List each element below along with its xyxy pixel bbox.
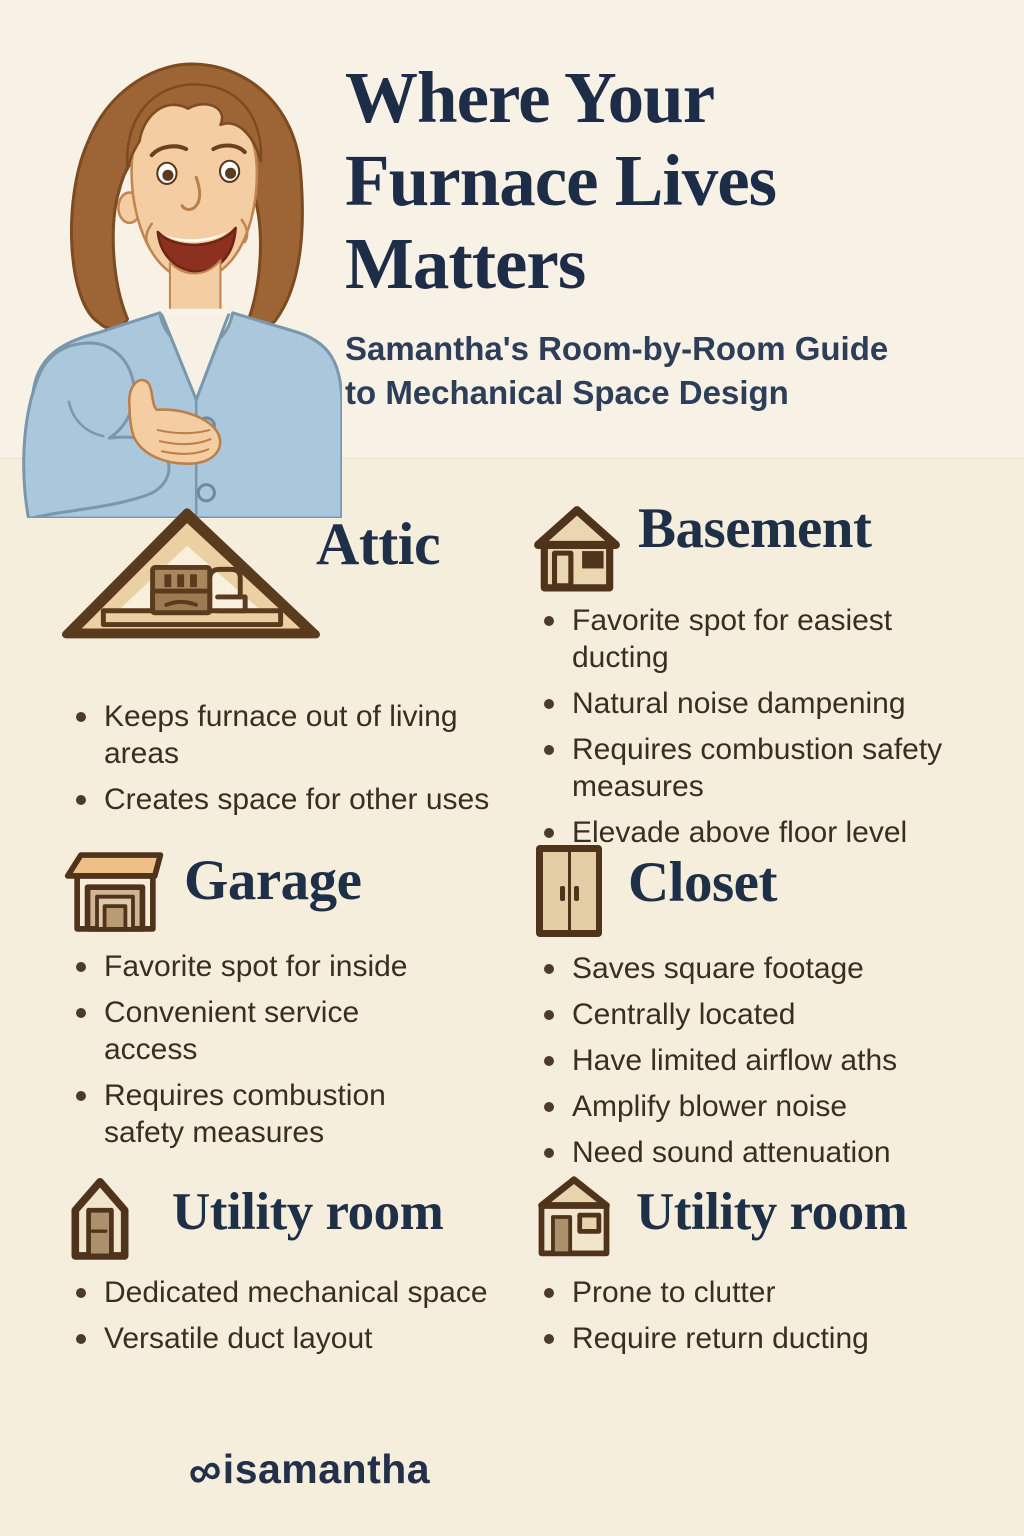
section-heading-garage: Garage [184, 848, 361, 913]
basement-house-icon [530, 500, 624, 594]
section-attic: Attic Keeps furnace out of living areasC… [62, 506, 524, 827]
bullet-item: Prone to clutter [530, 1274, 990, 1311]
bullet-item: Amplify blower noise [530, 1088, 990, 1125]
title-line-1: Where Your [345, 56, 1005, 139]
closet-double-doors-icon [530, 840, 608, 942]
woman-illustration-svg [8, 48, 342, 518]
title-line-3: Matters [345, 222, 1005, 305]
page-title: Where Your Furnace Lives Matters [345, 56, 1005, 305]
header: Where Your Furnace Lives Matters Samanth… [345, 56, 1005, 415]
bullet-item: Need sound attenuation [530, 1134, 990, 1171]
section-garage: Garage Favorite spot for insideConvenien… [62, 846, 494, 1160]
bullet-item: Natural noise dampening [530, 685, 990, 722]
bullet-item: Keeps furnace out of living areas [62, 698, 492, 772]
bullet-item: Creates space for other uses [62, 781, 492, 818]
footer-brand: ∞ isamantha [188, 1446, 430, 1493]
bullet-item: Requires combustion safety measures [62, 1077, 454, 1151]
infinity-loop-icon: ∞ [183, 1443, 226, 1496]
bullet-list-utility-left: Dedicated mechanical spaceVersatile duct… [62, 1274, 522, 1357]
garage-icon [62, 846, 168, 936]
section-heading-attic: Attic [316, 510, 440, 579]
bullet-item: Require return ducting [530, 1320, 990, 1357]
title-line-2: Furnace Lives [345, 139, 1005, 222]
bullet-item: Versatile duct layout [62, 1320, 522, 1357]
bullet-list-utility-right: Prone to clutterRequire return ducting [530, 1274, 990, 1357]
bullet-list-closet: Saves square footageCentrally locatedHav… [530, 950, 990, 1171]
bullet-item: Dedicated mechanical space [62, 1274, 522, 1311]
section-utility-room-left: Utility room Dedicated mechanical spaceV… [62, 1170, 534, 1366]
section-heading-utility-right: Utility room [636, 1182, 907, 1242]
section-closet: Closet Saves square footageCentrally loc… [530, 840, 1024, 1180]
subtitle-line-1: Samantha's Room-by-Room Guide [345, 327, 1005, 371]
bullet-list-garage: Favorite spot for insideConvenient servi… [62, 948, 454, 1151]
bullet-item: Saves square footage [530, 950, 990, 987]
narrow-house-door-icon [62, 1170, 138, 1262]
bullet-item: Requires combustion safety measures [530, 731, 990, 805]
section-heading-basement: Basement [638, 496, 871, 561]
subtitle-line-2: to Mechanical Space Design [345, 371, 1005, 415]
section-utility-room-right: Utility room Prone to clutterRequire ret… [530, 1174, 1024, 1366]
bullet-item: Centrally located [530, 996, 990, 1033]
samantha-presenter-illustration [8, 48, 342, 518]
attic-cutaway-house-icon [62, 506, 320, 684]
bullet-list-basement: Favorite spot for easiest ductingNatural… [530, 602, 990, 851]
infographic-poster: Where Your Furnace Lives Matters Samanth… [0, 0, 1024, 1536]
section-heading-utility-left: Utility room [172, 1182, 443, 1242]
bullet-item: Favorite spot for inside [62, 948, 454, 985]
section-basement: Basement Favorite spot for easiest ducti… [530, 500, 1024, 860]
house-door-window-icon [530, 1174, 618, 1260]
page-subtitle: Samantha's Room-by-Room Guide to Mechani… [345, 327, 1005, 415]
section-heading-closet: Closet [628, 850, 777, 915]
bullet-item: Convenient service access [62, 994, 454, 1068]
bullet-list-attic: Keeps furnace out of living areasCreates… [62, 698, 492, 818]
brand-name: isamantha [223, 1446, 430, 1493]
bullet-item: Favorite spot for easiest ducting [530, 602, 990, 676]
bullet-item: Have limited airflow aths [530, 1042, 990, 1079]
